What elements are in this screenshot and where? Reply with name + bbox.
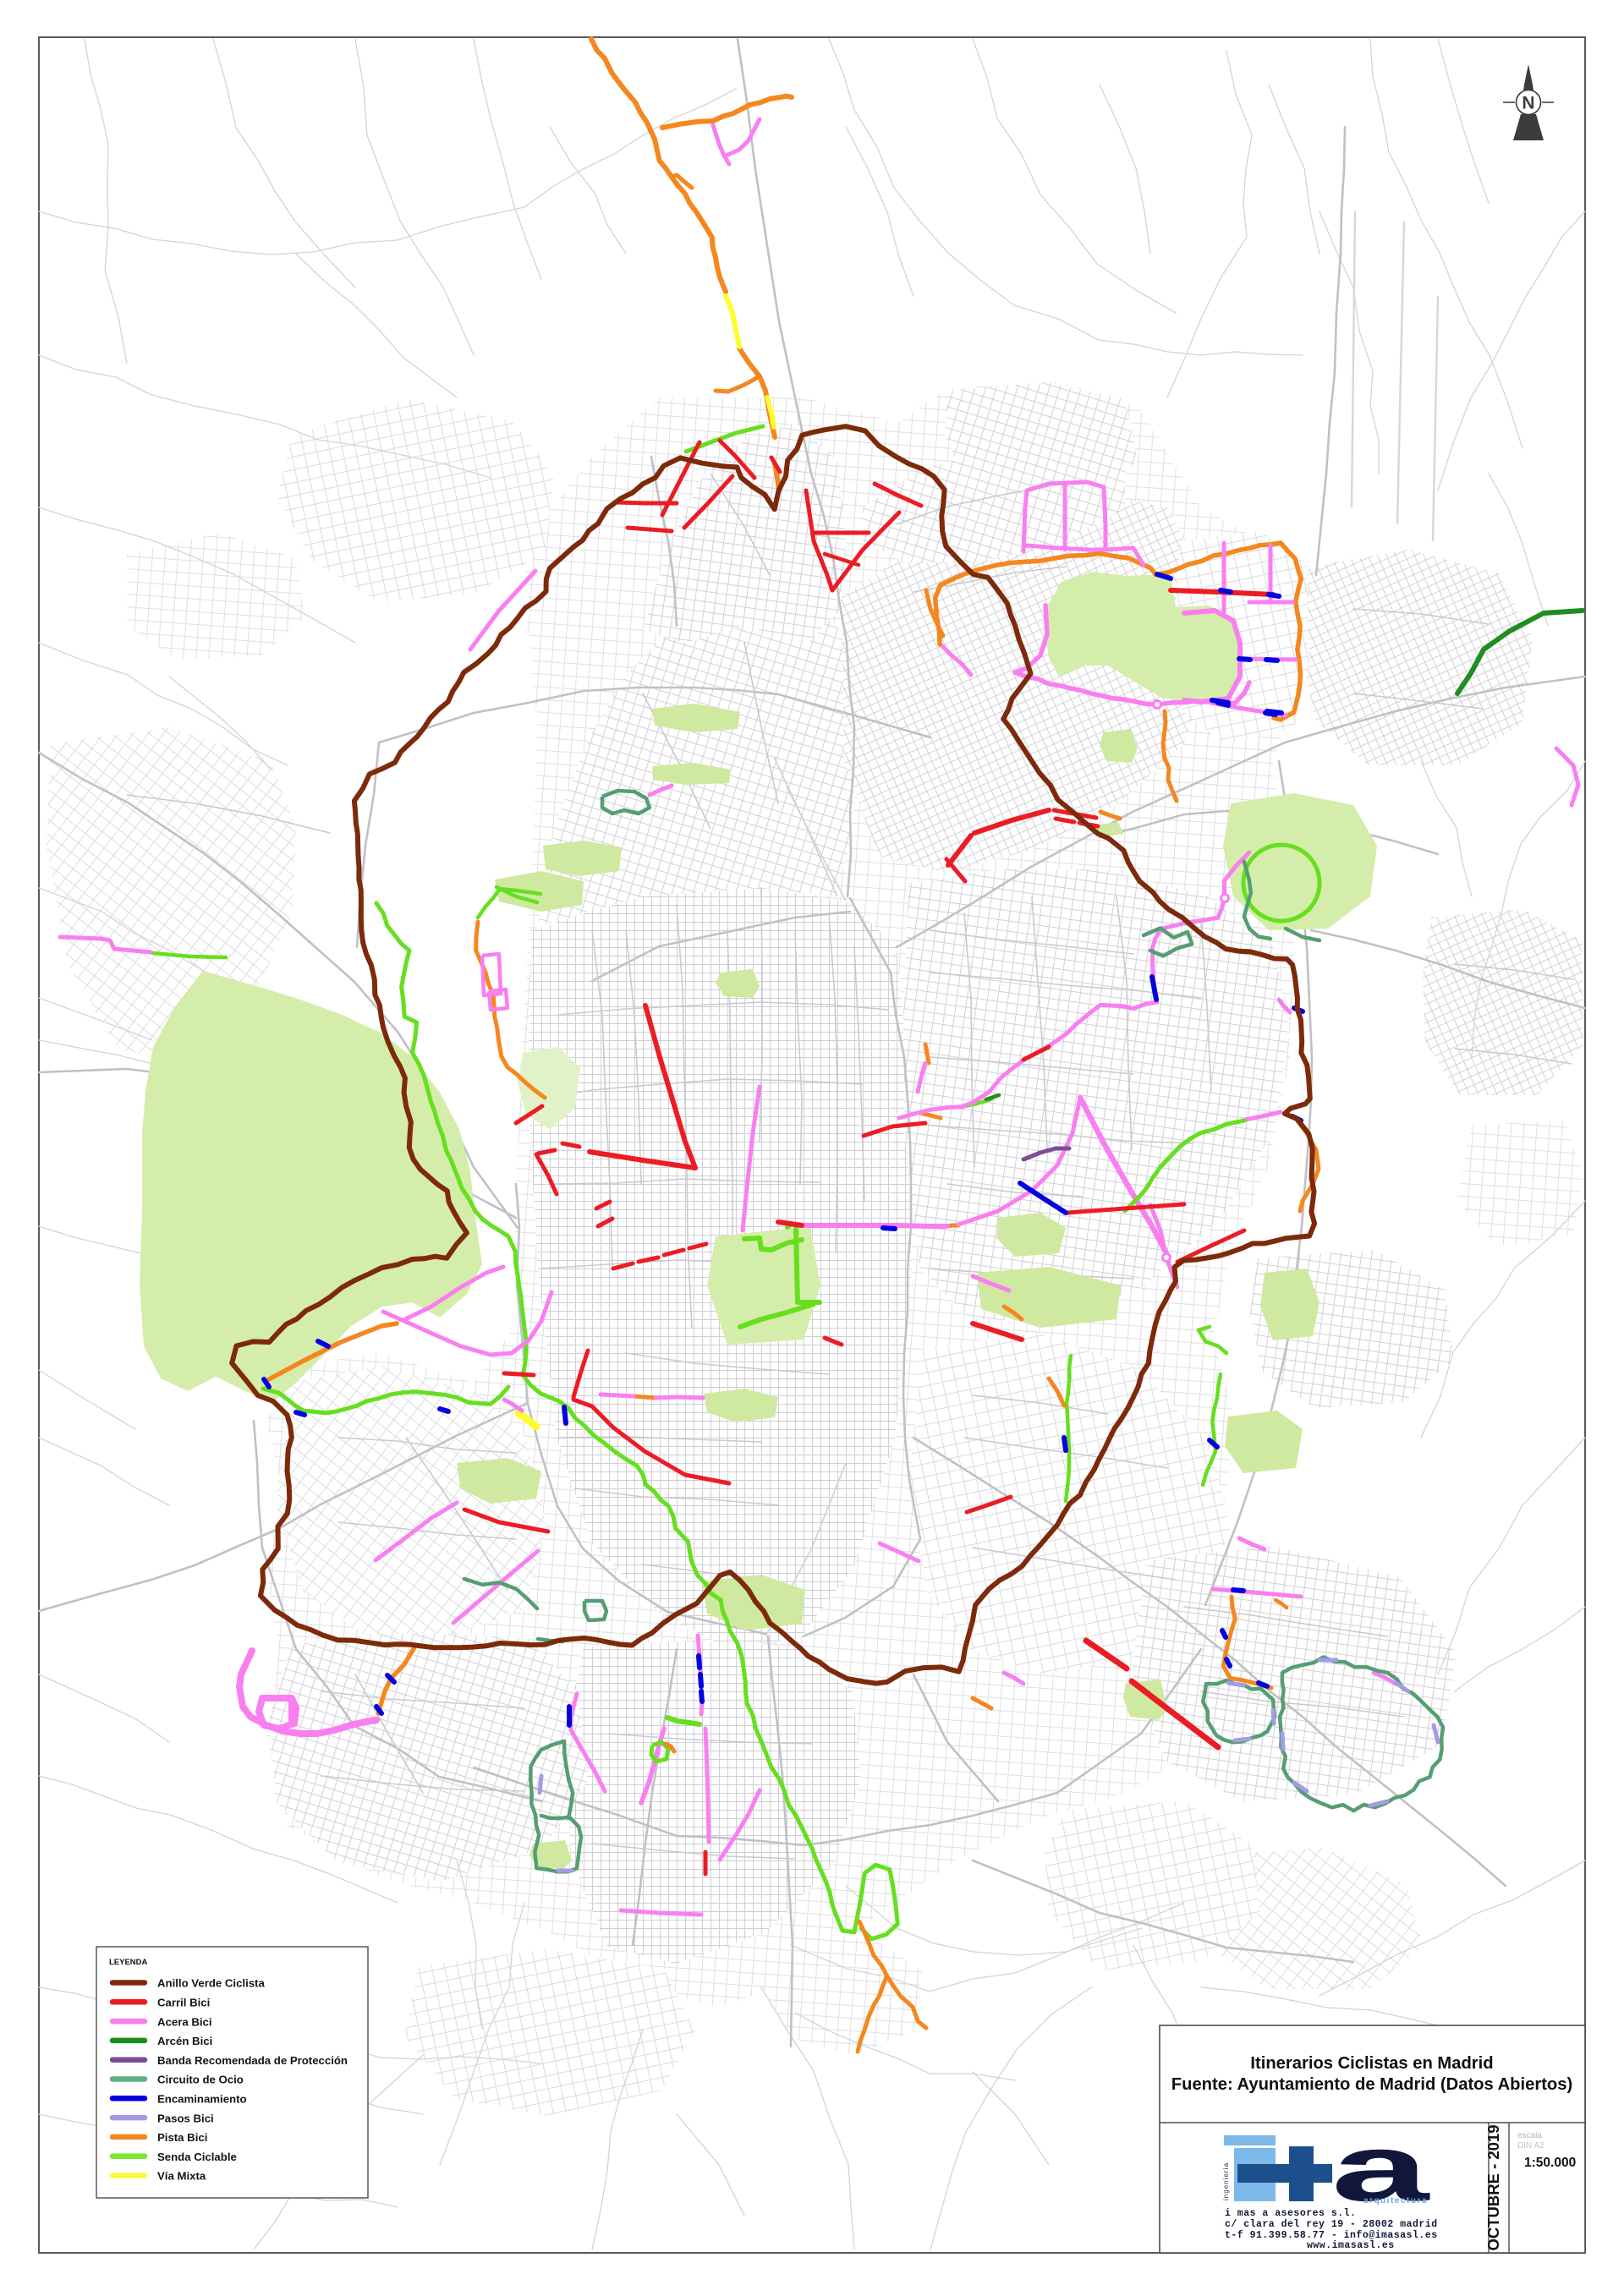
svg-text:Carril Bici: Carril Bici bbox=[157, 1997, 210, 2009]
svg-text:Itinerarios Ciclistas en Madri: Itinerarios Ciclistas en Madrid bbox=[1250, 2054, 1493, 2073]
svg-text:i mas a asesores s.l.: i mas a asesores s.l. bbox=[1225, 2208, 1356, 2219]
svg-text:N: N bbox=[1522, 94, 1534, 113]
svg-text:Encaminamiento: Encaminamiento bbox=[157, 2093, 247, 2106]
svg-text:DIN A2: DIN A2 bbox=[1517, 2141, 1544, 2151]
svg-text:Pasos Bici: Pasos Bici bbox=[157, 2112, 214, 2124]
svg-text:Senda Ciclable: Senda Ciclable bbox=[157, 2151, 237, 2163]
svg-text:c/ clara del rey 19 - 28002 ma: c/ clara del rey 19 - 28002 madrid bbox=[1225, 2219, 1438, 2230]
svg-text:ingeniería: ingeniería bbox=[1222, 2162, 1230, 2200]
svg-text:escala: escala bbox=[1517, 2131, 1542, 2140]
svg-text:Fuente: Ayuntamiento de Madrid: Fuente: Ayuntamiento de Madrid (Datos Ab… bbox=[1171, 2075, 1572, 2094]
svg-text:Pista Bici: Pista Bici bbox=[157, 2131, 207, 2144]
svg-text:OCTUBRE - 2019: OCTUBRE - 2019 bbox=[1484, 2124, 1502, 2250]
svg-text:Banda Recomendada de Protecció: Banda Recomendada de Protección bbox=[157, 2054, 348, 2067]
svg-text:Arcén Bici: Arcén Bici bbox=[157, 2035, 212, 2047]
svg-text:Vía Mixta: Vía Mixta bbox=[157, 2170, 206, 2183]
svg-text:1:50.000: 1:50.000 bbox=[1524, 2156, 1576, 2170]
svg-text:Acera Bici: Acera Bici bbox=[157, 2015, 212, 2028]
svg-text:www.imasasl.es: www.imasasl.es bbox=[1307, 2240, 1395, 2251]
svg-text:arquitectura: arquitectura bbox=[1363, 2196, 1428, 2206]
svg-text:Anillo Verde Ciclista: Anillo Verde Ciclista bbox=[157, 1977, 265, 1990]
svg-text:LEYENDA: LEYENDA bbox=[109, 1958, 148, 1967]
svg-text:Circuito de Ocio: Circuito de Ocio bbox=[157, 2074, 244, 2086]
